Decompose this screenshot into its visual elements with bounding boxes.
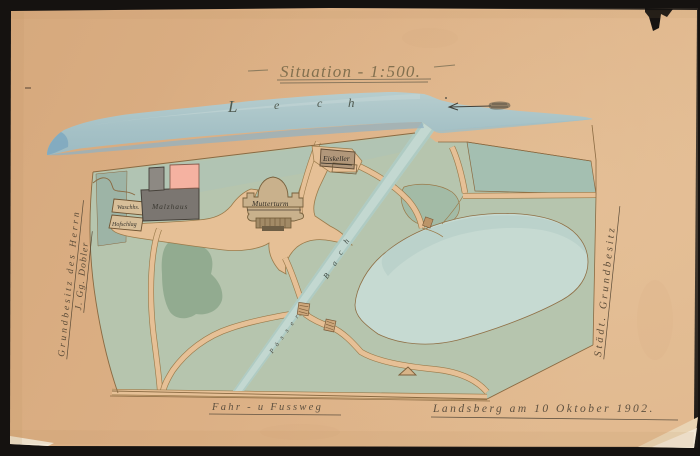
svg-text:Landsberg am 10 Oktober 1902.: Landsberg am 10 Oktober 1902. [432, 403, 655, 415]
svg-text:Fahr - u Fussweg: Fahr - u Fussweg [211, 402, 323, 413]
svg-text:Malzhaus: Malzhaus [151, 202, 188, 211]
svg-text:h: h [348, 95, 355, 110]
svg-text:Hofschlag: Hofschlag [111, 221, 137, 228]
svg-text:Mutterturm: Mutterturm [251, 199, 289, 208]
svg-text:c: c [317, 96, 323, 110]
svg-text:L: L [227, 97, 237, 116]
svg-text:e: e [274, 98, 280, 112]
svg-text:Eiskeller: Eiskeller [322, 154, 350, 163]
svg-text:Situation - 1:500.: Situation - 1:500. [280, 62, 421, 81]
svg-text:Waschhs.: Waschhs. [117, 205, 139, 211]
